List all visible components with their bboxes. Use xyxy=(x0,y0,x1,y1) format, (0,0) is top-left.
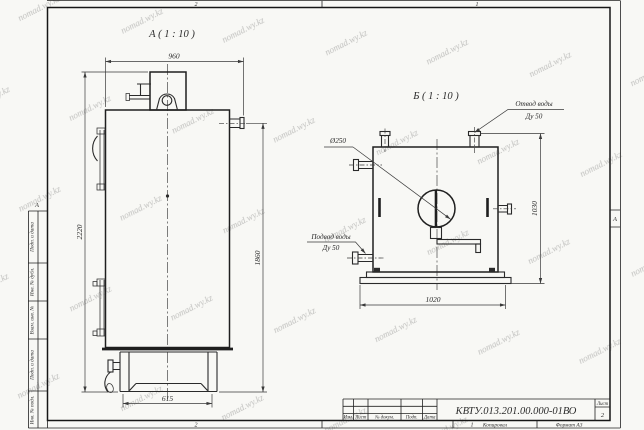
dim-1020-text: 1020 xyxy=(426,295,441,304)
margin-field-5: Инв. № подл. xyxy=(29,396,36,426)
dim-2220-text: 2220 xyxy=(75,224,84,239)
watermark-layer xyxy=(0,0,644,430)
dim-1860-text: 1860 xyxy=(253,250,262,265)
drawing-designation: КВТУ.013.201.00.000-01ВО xyxy=(455,406,577,417)
margin-field-3: Взам. инв. № xyxy=(30,306,36,335)
margin-field-1: Подп. и дата xyxy=(29,222,36,253)
drawing-sheet: nomad.wy.kz nomad.wy.kz 2 1 2 1 А А Копи… xyxy=(0,0,644,430)
outlet-text-2: Ду 50 xyxy=(525,113,543,121)
zone-top-left: 2 xyxy=(195,2,198,8)
center-mark xyxy=(166,194,169,197)
titleblock-col-list: Лист xyxy=(354,415,367,420)
sheet-label: Лист xyxy=(596,402,609,407)
view-b-title: Б ( 1 : 10 ) xyxy=(412,91,459,102)
outlet-text-1: Отвод воды xyxy=(515,100,552,108)
zone-top-right: 1 xyxy=(476,2,479,8)
zone-bottom-right: 1 xyxy=(471,423,474,429)
zone-right: А xyxy=(612,216,617,223)
dim-1030-text: 1030 xyxy=(530,201,539,216)
zone-bottom-left: 2 xyxy=(195,423,198,429)
format-label: Формат А3 xyxy=(556,422,583,428)
inlet-text-1: Подвод воды xyxy=(310,233,350,241)
zone-left: А xyxy=(34,202,39,209)
margin-field-2: Инв. № дубл. xyxy=(29,268,36,297)
dim-615-text: 615 xyxy=(162,394,174,403)
margin-field-4: Подп. и дата xyxy=(29,350,36,381)
titleblock-col-data: Дата xyxy=(423,415,436,420)
dim-960-text: 960 xyxy=(168,52,180,61)
titleblock-col-izm: Изм. xyxy=(342,415,352,420)
inlet-text-2: Ду 50 xyxy=(322,244,340,252)
dim-diameter-text: Ø250 xyxy=(329,137,346,145)
copied-label: Копировал xyxy=(482,422,508,428)
view-a-title: А ( 1 : 10 ) xyxy=(148,29,195,40)
titleblock-col-docnum: № докум. xyxy=(374,414,394,420)
titleblock-col-podp: Подп. xyxy=(405,415,418,420)
drawing-canvas: nomad.wy.kz nomad.wy.kz 2 1 2 1 А А Копи… xyxy=(0,0,644,430)
